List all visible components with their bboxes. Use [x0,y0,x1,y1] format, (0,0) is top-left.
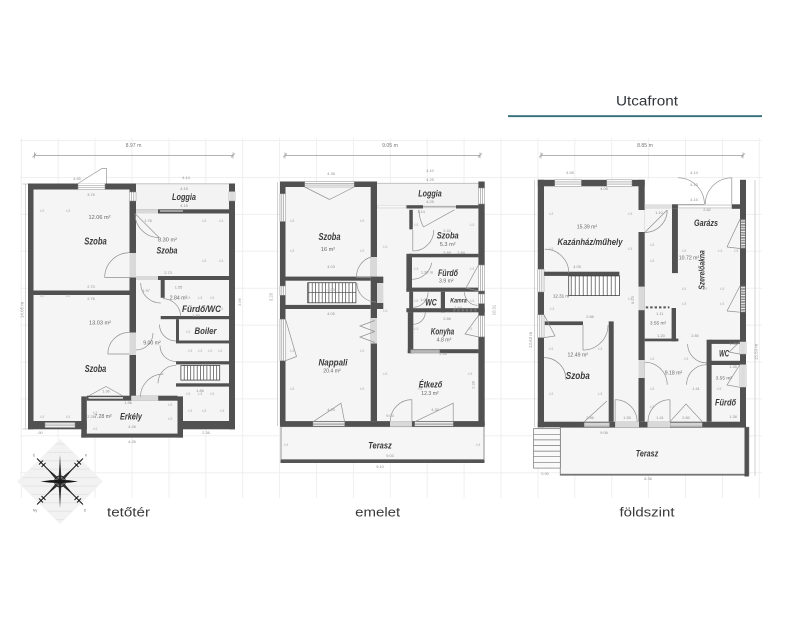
svg-text:4.8: 4.8 [549,212,554,216]
svg-text:4.8: 4.8 [476,443,481,447]
svg-text:4.8: 4.8 [210,392,215,396]
svg-text:Garázs: Garázs [694,218,718,229]
svg-text:12.49 m²: 12.49 m² [568,353,589,359]
svg-text:9.18 m²: 9.18 m² [665,371,683,377]
svg-text:Szoba: Szoba [84,237,107,248]
svg-text:Szoba: Szoba [566,371,590,382]
svg-text:4.8: 4.8 [470,299,475,303]
svg-text:2.82: 2.82 [703,207,711,212]
svg-text:1.55: 1.55 [175,285,183,290]
svg-text:4.05: 4.05 [327,311,335,316]
svg-text:4.13: 4.13 [690,182,698,187]
svg-text:4.8: 4.8 [93,411,98,415]
svg-text:földszint: földszint [620,505,675,520]
svg-text:4.8: 4.8 [470,267,475,271]
svg-text:4.10: 4.10 [426,168,434,173]
svg-text:1.76: 1.76 [144,218,152,223]
svg-text:Fürdő: Fürdő [715,398,736,408]
svg-text:4.8: 4.8 [290,387,295,391]
svg-text:4.8: 4.8 [470,223,475,227]
svg-text:4.8: 4.8 [703,287,708,291]
svg-text:Fürdő/WC: Fürdő/WC [182,304,221,314]
svg-text:WC: WC [719,349,729,359]
svg-text:4.8: 4.8 [208,349,213,353]
svg-text:12.06 m²: 12.06 m² [88,215,110,221]
svg-text:4.8: 4.8 [290,349,295,353]
svg-text:tetőtér: tetőtér [107,505,151,520]
svg-text:2.86: 2.86 [586,415,594,420]
svg-text:4.8: 4.8 [360,387,365,391]
svg-text:9.10: 9.10 [376,464,384,469]
svg-text:Kazánház/műhely: Kazánház/műhely [558,237,624,248]
svg-text:4.8: 4.8 [202,259,207,263]
svg-text:20.4 m²: 20.4 m² [323,369,341,375]
svg-text:4.8: 4.8 [468,327,473,331]
svg-text:9.06: 9.06 [600,430,608,435]
svg-text:1.96: 1.96 [102,390,109,394]
svg-text:4.8: 4.8 [360,249,365,253]
svg-text:9.03: 9.03 [386,453,394,458]
svg-text:4.8: 4.8 [186,330,191,334]
svg-text:4.8: 4.8 [718,249,723,253]
svg-text:4.8: 4.8 [198,296,203,300]
svg-text:Étkező: Étkező [419,380,443,391]
svg-text:Fürdő: Fürdő [438,268,458,278]
svg-text:4.8: 4.8 [383,372,388,376]
svg-text:8.36: 8.36 [644,476,652,481]
svg-text:2.80: 2.80 [682,415,690,420]
svg-text:4.8: 4.8 [40,209,45,213]
svg-text:1.35: 1.35 [729,364,737,369]
svg-text:4.08: 4.08 [201,362,209,367]
svg-text:4.8: 4.8 [414,299,419,303]
svg-text:2.70: 2.70 [87,284,95,289]
svg-text:4.8: 4.8 [66,415,71,419]
svg-text:16 m²: 16 m² [321,247,335,253]
svg-text:4.8: 4.8 [650,387,655,391]
svg-text:4.15: 4.15 [180,203,188,208]
svg-text:4.8: 4.8 [598,392,603,396]
svg-text:Szoba: Szoba [319,232,341,243]
svg-text:4.8: 4.8 [549,247,554,251]
svg-text:Szoba: Szoba [85,364,107,375]
svg-text:4.8: 4.8 [219,307,224,311]
svg-text:4.03: 4.03 [327,407,335,412]
svg-text:2.84: 2.84 [457,250,465,255]
svg-text:3.55 m²: 3.55 m² [716,376,733,382]
svg-text:2.86: 2.86 [586,314,594,319]
svg-text:4.65: 4.65 [73,177,80,181]
svg-text:4.8: 4.8 [598,347,603,351]
svg-text:13.03 m²: 13.03 m² [89,321,111,327]
svg-text:4.8: 4.8 [188,349,193,353]
svg-text:4.35: 4.35 [431,407,439,412]
svg-text:Erkély: Erkély [120,412,143,423]
svg-text:4.25: 4.25 [426,199,434,204]
svg-text:14.05 m: 14.05 m [20,302,25,319]
svg-text:9.05 m: 9.05 m [382,143,398,149]
svg-text:4.8: 4.8 [360,349,365,353]
svg-text:4.8: 4.8 [468,372,473,376]
svg-text:4.26: 4.26 [128,439,136,444]
svg-text:4.14: 4.14 [690,170,698,175]
svg-text:4.8: 4.8 [198,392,203,396]
svg-text:1.41: 1.41 [692,386,700,391]
svg-text:3.96: 3.96 [237,297,242,306]
svg-text:2.44: 2.44 [443,228,451,233]
svg-text:2.44: 2.44 [454,305,462,310]
svg-text:15.53 m: 15.53 m [754,344,759,361]
svg-text:Szoba: Szoba [157,246,178,257]
svg-text:4.8: 4.8 [284,443,289,447]
svg-text:9.03: 9.03 [386,413,394,418]
svg-text:2.94: 2.94 [439,351,447,356]
svg-text:2.73: 2.73 [164,270,172,275]
svg-text:3.55 m²: 3.55 m² [650,321,667,327]
svg-text:4.8: 4.8 [188,409,193,413]
svg-text:1.96: 1.96 [124,400,132,405]
svg-text:4.8: 4.8 [650,243,655,247]
svg-text:4.8: 4.8 [720,302,725,306]
svg-text:4.8: 4.8 [210,296,215,300]
svg-text:Loggia: Loggia [172,192,196,203]
svg-text:4.8: 4.8 [549,392,554,396]
svg-text:4.8: 4.8 [717,387,722,391]
svg-text:4.8: 4.8 [650,405,655,409]
svg-text:3.9 m²: 3.9 m² [439,279,454,285]
svg-text:4.26: 4.26 [128,424,136,429]
svg-text:3.76: 3.76 [87,192,95,197]
svg-text:4.8: 4.8 [93,427,98,431]
svg-text:1.11: 1.11 [656,311,663,316]
svg-text:1.20: 1.20 [657,333,665,338]
svg-text:4.8: 4.8 [290,249,295,253]
svg-text:4.8: 4.8 [383,309,388,313]
svg-text:emelet: emelet [355,505,400,520]
svg-text:4.8: 4.8 [186,392,191,396]
svg-text:4.03: 4.03 [327,264,335,269]
svg-text:4.8: 4.8 [198,349,203,353]
svg-text:4.15: 4.15 [180,186,188,191]
svg-text:4.8: 4.8 [219,219,224,223]
svg-text:9.00 m²: 9.00 m² [143,341,161,347]
svg-text:2.86: 2.86 [443,316,451,321]
svg-text:4.8: 4.8 [682,249,687,253]
svg-text:10.01: 10.01 [492,304,497,315]
svg-text:4.8: 4.8 [682,287,687,291]
svg-text:5.3 m²: 5.3 m² [440,242,456,248]
svg-text:4.8: 4.8 [628,297,633,301]
svg-text:4.8: 4.8 [414,327,419,331]
svg-text:4.8: 4.8 [40,294,45,298]
svg-text:8.97 m: 8.97 m [126,143,142,149]
svg-text:2.36: 2.36 [202,430,210,435]
svg-text:1.97: 1.97 [142,288,150,293]
svg-text:4.8: 4.8 [210,330,215,334]
svg-text:4.8: 4.8 [202,409,207,413]
svg-text:Nappali: Nappali [319,358,348,369]
svg-text:15.39 m²: 15.39 m² [577,225,598,231]
svg-text:4.8: 4.8 [66,209,71,213]
svg-text:Terasz: Terasz [368,441,392,452]
svg-text:2.76: 2.76 [87,296,95,301]
svg-text:4.8: 4.8 [40,415,45,419]
svg-text:1.41: 1.41 [656,415,664,420]
svg-text:1.03: 1.03 [420,297,428,302]
svg-text:4.8: 4.8 [549,347,554,351]
svg-text:4.05: 4.05 [573,264,581,269]
svg-text:4.8: 4.8 [628,247,633,251]
svg-text:4.8: 4.8 [414,223,419,227]
svg-text:Konyha: Konyha [431,327,455,337]
svg-text:4.8: 4.8 [418,387,423,391]
svg-text:4.8: 4.8 [168,403,173,407]
svg-text:8.30 m²: 8.30 m² [158,238,177,244]
svg-text:4.8: 4.8 [550,307,555,311]
svg-text:Kamra: Kamra [450,298,467,305]
svg-text:12.31 m: 12.31 m [553,294,570,299]
svg-text:Terasz: Terasz [636,449,659,460]
svg-text:1.36: 1.36 [729,341,737,346]
svg-text:4.25: 4.25 [426,177,434,182]
svg-text:4.8: 4.8 [66,294,71,298]
svg-text:4.8: 4.8 [202,219,207,223]
svg-text:1.92 m: 1.92 m [421,270,434,275]
svg-text:12.3 m²: 12.3 m² [421,391,439,397]
svg-text:4.8 m²: 4.8 m² [437,338,452,344]
svg-text:1.38: 1.38 [729,414,737,419]
svg-text:4.55: 4.55 [566,170,574,175]
svg-text:13.63 m: 13.63 m [528,332,533,349]
svg-text:4.8: 4.8 [220,409,225,413]
svg-text:4.8: 4.8 [628,212,633,216]
svg-text:4.14: 4.14 [182,175,190,180]
svg-text:4.36: 4.36 [327,171,335,176]
svg-text:4.15: 4.15 [690,197,698,202]
svg-text:4.8: 4.8 [290,219,295,223]
svg-text:Utcafront: Utcafront [616,94,678,109]
svg-text:1.55: 1.55 [623,415,631,420]
svg-text:4.8: 4.8 [682,302,687,306]
svg-text:4.8: 4.8 [684,357,689,361]
svg-text:1.50: 1.50 [192,313,200,318]
svg-text:4.8: 4.8 [720,287,725,291]
svg-text:4.8: 4.8 [168,417,173,421]
svg-text:1.14: 1.14 [417,209,425,214]
svg-text:4.8: 4.8 [650,357,655,361]
svg-text:2.38: 2.38 [471,380,476,389]
svg-text:2.89: 2.89 [443,250,451,255]
svg-text:3.20: 3.20 [269,292,274,301]
svg-text:4.8: 4.8 [414,267,419,271]
svg-text:4.8: 4.8 [219,259,224,263]
svg-text:4.03: 4.03 [327,287,335,292]
svg-text:4.8: 4.8 [218,349,223,353]
svg-text:Loggia: Loggia [418,189,442,200]
svg-text:4.8: 4.8 [383,245,388,249]
svg-text:4.8: 4.8 [650,259,655,263]
svg-text:.90: .90 [37,430,43,435]
svg-text:4.05: 4.05 [600,186,608,191]
svg-text:2.80: 2.80 [691,333,699,338]
svg-text:0.90: 0.90 [541,471,549,476]
svg-text:1.10: 1.10 [655,210,663,215]
svg-text:Ny: Ny [33,509,38,513]
svg-text:4.8: 4.8 [734,249,739,253]
svg-text:8.85 m: 8.85 m [637,143,653,149]
svg-text:4.8: 4.8 [186,296,191,300]
svg-text:10.72 m²: 10.72 m² [679,256,700,262]
svg-text:4.8: 4.8 [360,219,365,223]
